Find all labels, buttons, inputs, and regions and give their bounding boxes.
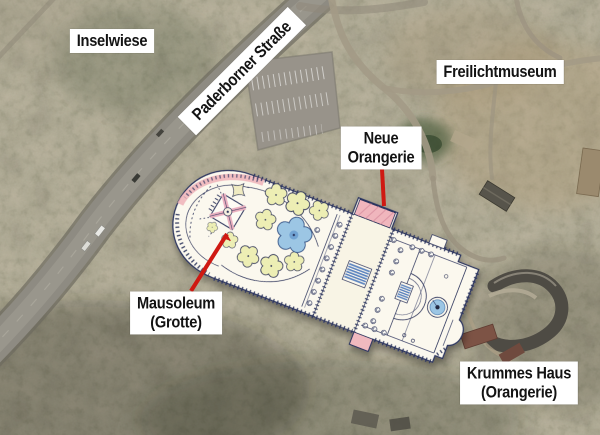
label-mausoleum-grotte: Mausoleum (Grotte) <box>123 291 230 334</box>
label-inselwiese-text: Inselwiese <box>77 31 148 50</box>
label-krummes-haus-line2: (Orangerie) <box>467 383 571 402</box>
label-neue-orangerie-line1: Neue <box>348 128 415 147</box>
label-neue-orangerie-line2: Orangerie <box>348 148 415 167</box>
label-inselwiese: Inselwiese <box>63 29 161 53</box>
aerial-map-image: Inselwiese Paderborner Straße Freilichtm… <box>0 0 600 435</box>
label-freilichtmuseum: Freilichtmuseum <box>426 60 574 84</box>
label-krummes-haus-line1: Krummes Haus <box>467 363 571 382</box>
pointer-neue-orangerie <box>382 169 384 206</box>
label-neue-orangerie: Neue Orangerie <box>334 126 428 169</box>
label-mausoleum-line2: (Grotte) <box>137 313 215 332</box>
label-freilichtmuseum-text: Freilichtmuseum <box>443 62 556 81</box>
label-krummes-haus: Krummes Haus (Orangerie) <box>450 361 587 404</box>
label-mausoleum-line1: Mausoleum <box>137 293 215 312</box>
